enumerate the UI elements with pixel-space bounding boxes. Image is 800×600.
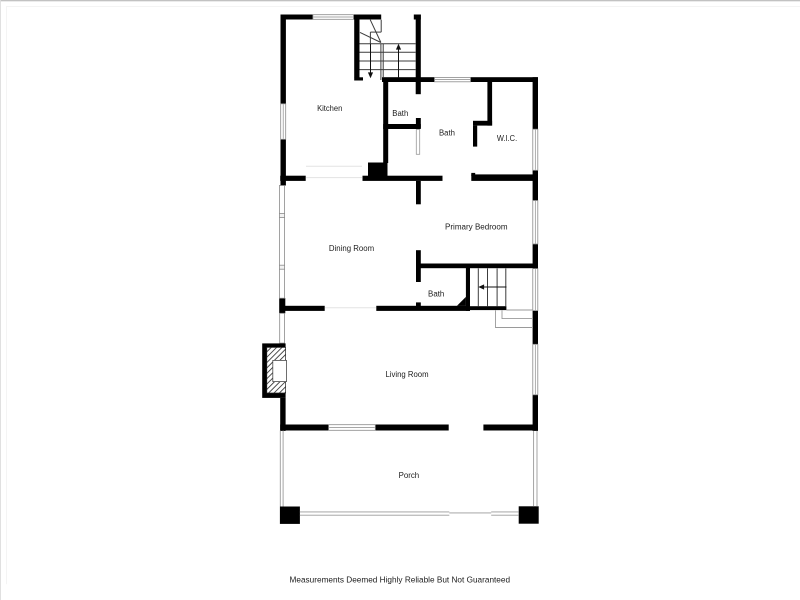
svg-text:Kitchen: Kitchen: [317, 104, 342, 113]
svg-text:Bath: Bath: [428, 290, 444, 299]
svg-text:Primary Bedroom: Primary Bedroom: [445, 223, 508, 232]
svg-text:Bath: Bath: [439, 128, 455, 137]
svg-text:W.I.C.: W.I.C.: [497, 134, 517, 143]
svg-text:Porch: Porch: [399, 471, 420, 480]
svg-text:Bath: Bath: [392, 109, 408, 118]
svg-text:Dining Room: Dining Room: [329, 244, 374, 253]
svg-text:Living Room: Living Room: [385, 370, 428, 379]
svg-text:Measurements Deemed Highly Rel: Measurements Deemed Highly Reliable But …: [290, 574, 511, 584]
